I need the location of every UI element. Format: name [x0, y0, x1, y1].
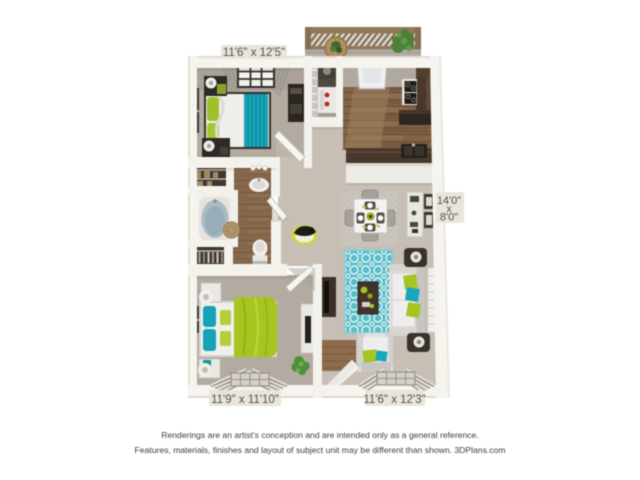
- svg-text:11'6" x 12'3": 11'6" x 12'3": [363, 394, 425, 406]
- svg-text:Renderings are an artist's con: Renderings are an artist's conception an…: [161, 430, 478, 440]
- svg-text:11'9" x 11'10": 11'9" x 11'10": [211, 394, 279, 406]
- svg-text:Features, materials, finishes: Features, materials, finishes and layout…: [135, 445, 506, 455]
- svg-text:8'0": 8'0": [440, 212, 458, 224]
- svg-text:11'6" x 12'5": 11'6" x 12'5": [223, 47, 285, 59]
